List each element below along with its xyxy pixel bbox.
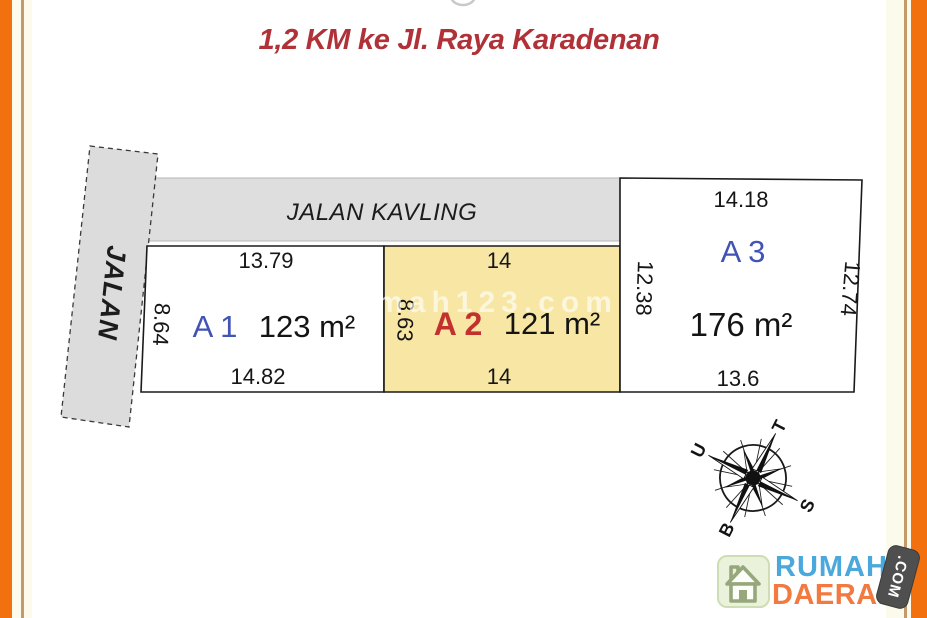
compass-east-label: T <box>768 417 791 436</box>
a1-label: A 1 <box>193 309 238 344</box>
a3-dim-right: 12.74 <box>836 260 866 317</box>
cropped-text-fragment <box>451 0 475 5</box>
flyer-canvas: 1,2 KM ke Jl. Raya Karadenan JALAN JALAN… <box>0 0 927 618</box>
a2-dim-bottom: 14 <box>487 364 511 389</box>
a3-label: A 3 <box>721 234 766 269</box>
siteplan-drawing: JALAN JALAN KAVLING 13.79 8.64 14.82 A 1… <box>0 0 927 618</box>
road-kavling-label: JALAN KAVLING <box>286 199 478 226</box>
watermark-text: rumah123.com <box>334 286 618 319</box>
a3-area: 176 m² <box>690 306 793 343</box>
a1-dim-bottom: 14.82 <box>230 364 285 389</box>
a2-dim-top: 14 <box>487 248 511 273</box>
compass-rose: U T S B <box>660 389 845 568</box>
a3-dim-bottom: 13.6 <box>717 366 760 391</box>
brand-logo: RUMAH DAERAH .COM <box>718 544 921 611</box>
a3-dim-top: 14.18 <box>713 187 768 212</box>
compass-south-label: S <box>796 496 819 516</box>
compass-north-label: U <box>687 440 711 461</box>
compass-west-label: B <box>715 519 739 540</box>
a3-dim-left: 12.38 <box>631 260 658 316</box>
a1-dim-top: 13.79 <box>238 248 293 273</box>
a1-dim-left: 8.64 <box>148 302 175 346</box>
